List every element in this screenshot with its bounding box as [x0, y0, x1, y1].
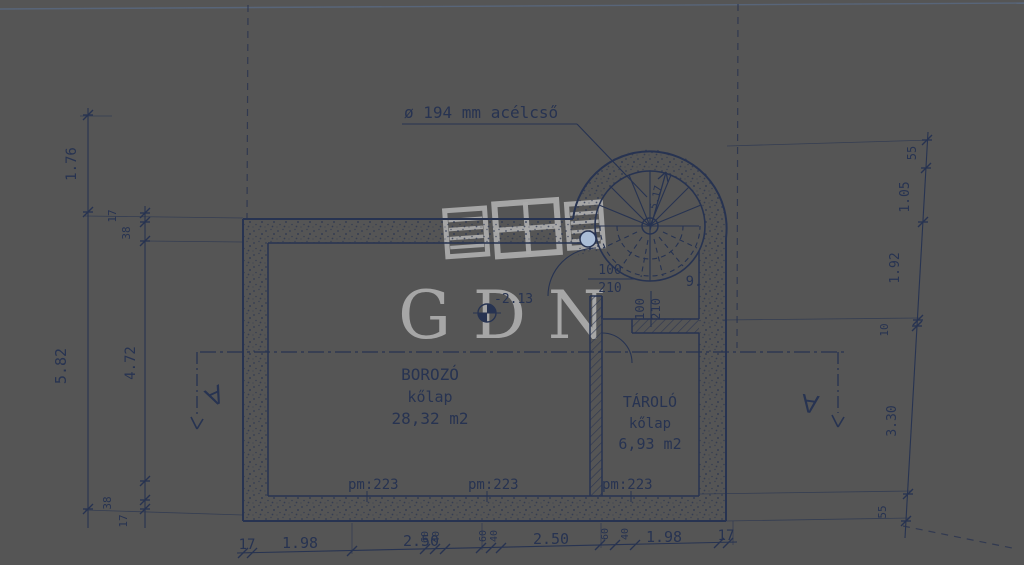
pipe-label: ø 194 mm acélcső: [404, 103, 558, 122]
pipe-circle: [580, 231, 596, 247]
section-line: [191, 352, 845, 429]
door1-height: 210: [598, 281, 621, 296]
door1-width: 100: [598, 263, 621, 278]
dim-bottom-40b: 40: [489, 530, 500, 542]
room-tarolo-area: 6,93 m2: [618, 435, 681, 453]
section-arrowheads: [191, 415, 844, 429]
dim-left-17b: 17: [117, 514, 130, 527]
section-letter-left: A: [200, 379, 229, 414]
dim-bottom-198b: 1.98: [646, 528, 682, 546]
room-borozo-floor: kőlap: [407, 388, 452, 406]
dim-bottom-40c: 40: [620, 528, 631, 540]
sill-label-3: pm:223: [602, 477, 653, 493]
scan-page-edge: [0, 3, 1024, 9]
section-letter-right: A: [799, 388, 821, 420]
room-tarolo-floor: kőlap: [629, 416, 671, 432]
dim-right-55a: 55: [905, 146, 919, 160]
dim-bottom-17b: 17: [718, 528, 735, 544]
floorplan-drawing: GDN: [0, 0, 1024, 565]
level-value: -2.13: [494, 292, 533, 307]
dim-left-38a: 38: [120, 226, 133, 239]
dim-bottom-250b: 2.50: [533, 530, 569, 548]
dim-bottom-60c: 60: [600, 528, 611, 540]
door2-width: 100: [633, 298, 647, 320]
dim-bottom-60b: 60: [478, 530, 489, 542]
room-borozo-area: 28,32 m2: [391, 409, 468, 428]
floorplan-scan: GDN: [0, 0, 1024, 565]
dim-left-472: 4.72: [123, 346, 139, 380]
stair-flight-label: 5.17: [649, 185, 665, 211]
dim-right-105: 1.05: [898, 181, 913, 212]
dim-bottom-40a: 40: [431, 531, 442, 543]
dim-left-17a: 17: [106, 209, 119, 222]
dim-right-192: 1.92: [888, 252, 903, 283]
room-tarolo-name: TÁROLÓ: [623, 392, 677, 411]
dim-left-582: 5.82: [52, 348, 70, 384]
room-borozo-name: BOROZÓ: [401, 365, 459, 384]
stair-number: 9.: [686, 274, 703, 290]
sill-label-1: pm:223: [348, 477, 399, 493]
dim-left-38b: 38: [101, 496, 114, 509]
dim-right-10: 10: [878, 323, 891, 336]
sill-label-2: pm:223: [468, 477, 519, 493]
dim-bottom-60a: 60: [420, 531, 431, 543]
dim-bottom-198a: 1.98: [282, 534, 318, 552]
dim-right-55b: 55: [876, 505, 889, 518]
dim-left-176: 1.76: [64, 147, 80, 181]
dim-bottom-17a: 17: [239, 537, 256, 553]
dim-right-330: 3.30: [885, 405, 900, 436]
